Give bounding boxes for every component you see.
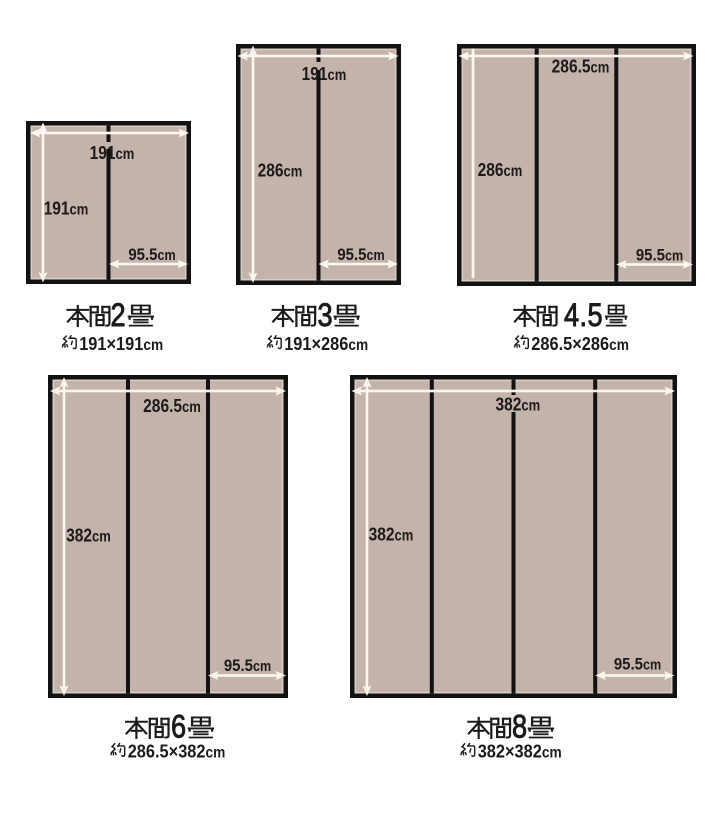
svg-text:286cm: 286cm (478, 160, 523, 181)
svg-text:4.5: 4.5 (564, 298, 603, 334)
svg-text:95.5cm: 95.5cm (337, 246, 384, 264)
svg-text:382cm: 382cm (369, 524, 414, 545)
svg-text:286.5cm: 286.5cm (143, 396, 201, 417)
svg-text:95.5cm: 95.5cm (128, 246, 175, 264)
svg-text:191cm: 191cm (90, 143, 135, 164)
svg-text:191cm: 191cm (302, 64, 347, 85)
svg-text:382cm: 382cm (66, 525, 111, 546)
svg-text:3: 3 (317, 298, 332, 334)
svg-text:286.5cm: 286.5cm (552, 56, 610, 77)
svg-text:382cm: 382cm (495, 394, 540, 415)
svg-text:191cm: 191cm (44, 198, 89, 219)
svg-text:286cm: 286cm (258, 160, 303, 181)
svg-text:95.5cm: 95.5cm (224, 657, 271, 675)
svg-text:95.5cm: 95.5cm (636, 247, 683, 265)
svg-text:2: 2 (110, 298, 125, 334)
svg-text:95.5cm: 95.5cm (614, 656, 661, 674)
